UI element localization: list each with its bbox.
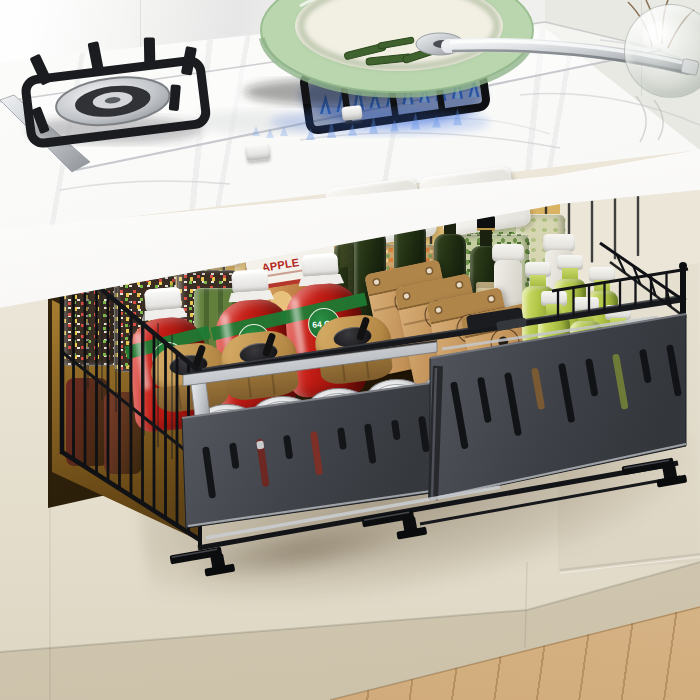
tin-ring bbox=[432, 375, 478, 401]
metal-tin bbox=[252, 396, 314, 434]
wood-canister bbox=[218, 328, 301, 403]
metal-tin bbox=[424, 370, 486, 408]
tin-ring bbox=[374, 384, 420, 410]
tin-ring bbox=[204, 409, 250, 435]
metal-tin bbox=[308, 388, 370, 426]
basket-contents: APPLE PIE 64 OZ 64 OZ 64 OZ bbox=[0, 0, 700, 700]
metal-tin bbox=[480, 361, 542, 399]
tin-ring bbox=[316, 393, 362, 419]
kitchen-product-photo: APPLE PIE 64 OZ 64 OZ 64 OZ bbox=[0, 0, 700, 700]
tin-ring bbox=[260, 401, 306, 427]
metal-tin bbox=[366, 379, 428, 417]
wood-canister bbox=[312, 312, 395, 387]
metal-tin bbox=[196, 404, 258, 442]
tin-ring bbox=[488, 366, 534, 392]
